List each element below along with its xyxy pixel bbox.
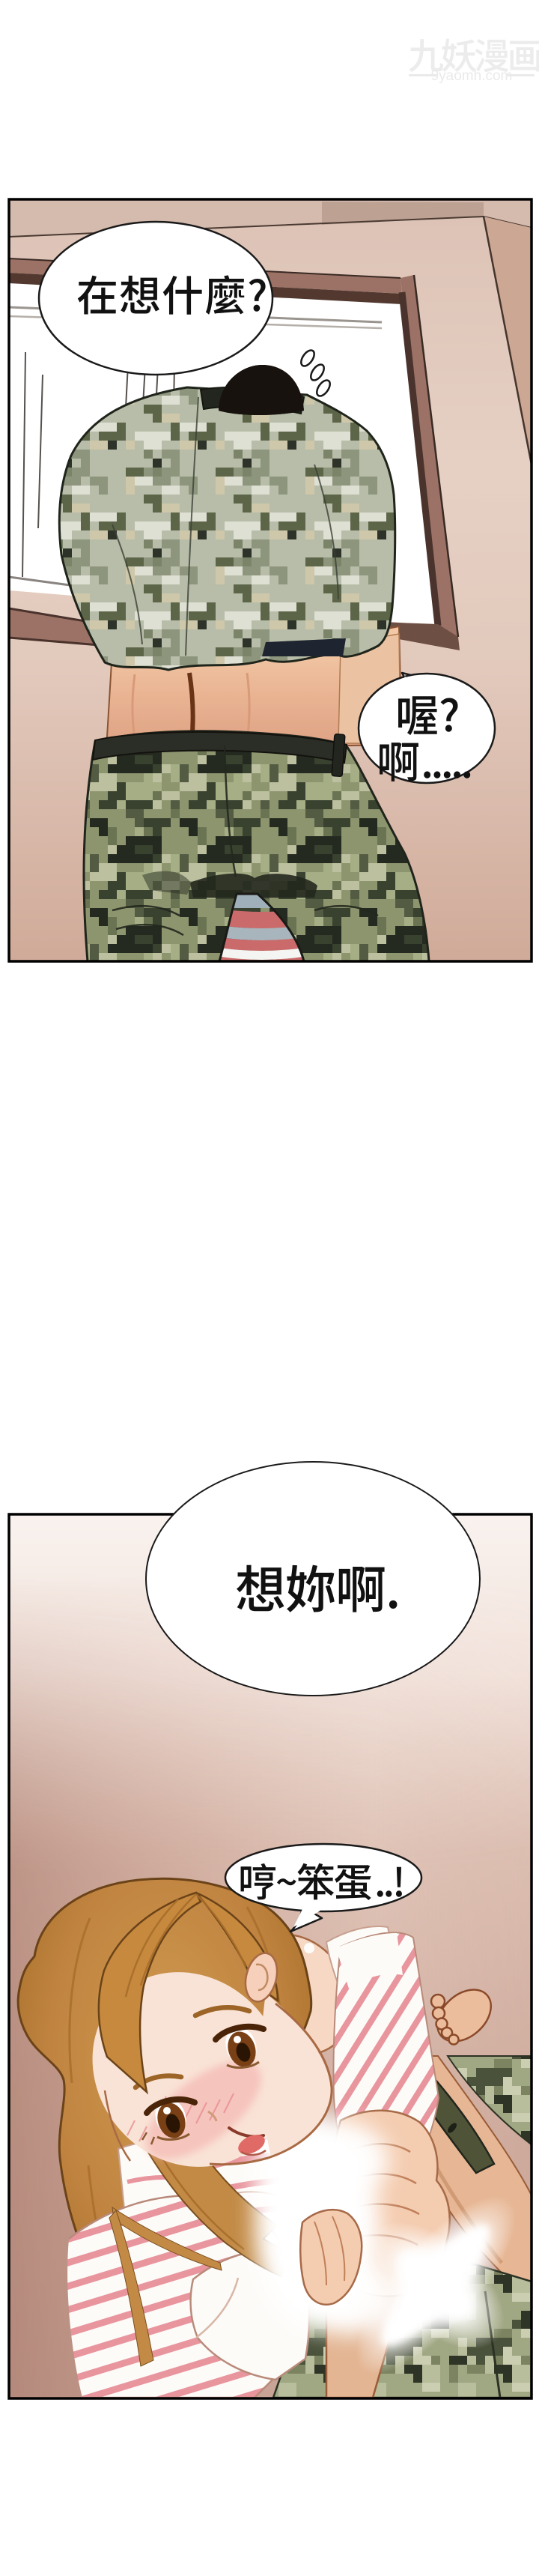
svg-text:9yaomh.com: 9yaomh.com	[431, 68, 513, 84]
